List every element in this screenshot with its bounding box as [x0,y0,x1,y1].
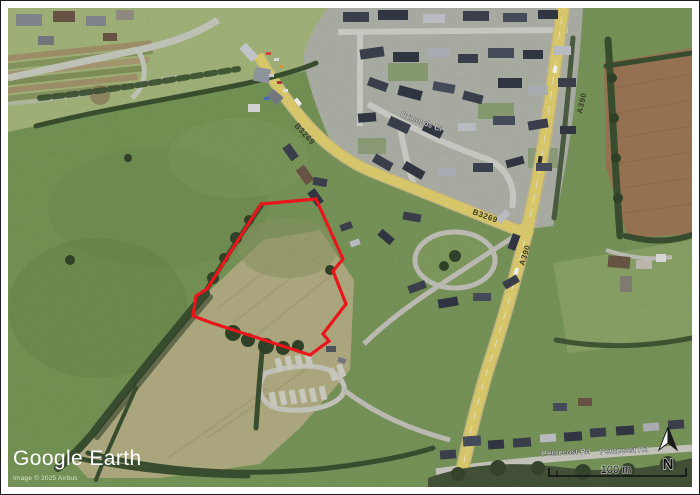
map-viewport[interactable]: B3269 B3269 A390 A390 Dymonds Cl Penteco… [8,8,692,487]
north-label: N [663,456,674,473]
scale-label: 100 m [601,464,632,476]
google-earth-logo: Google Earth [13,447,142,470]
google-earth-window: B3269 B3269 A390 A390 Dymonds Cl Penteco… [0,0,700,495]
photo-grain [8,8,692,487]
satellite-imagery: B3269 B3269 A390 A390 Dymonds Cl Penteco… [8,8,692,487]
imagery-copyright: Image © 2025 Airbus [13,474,78,482]
